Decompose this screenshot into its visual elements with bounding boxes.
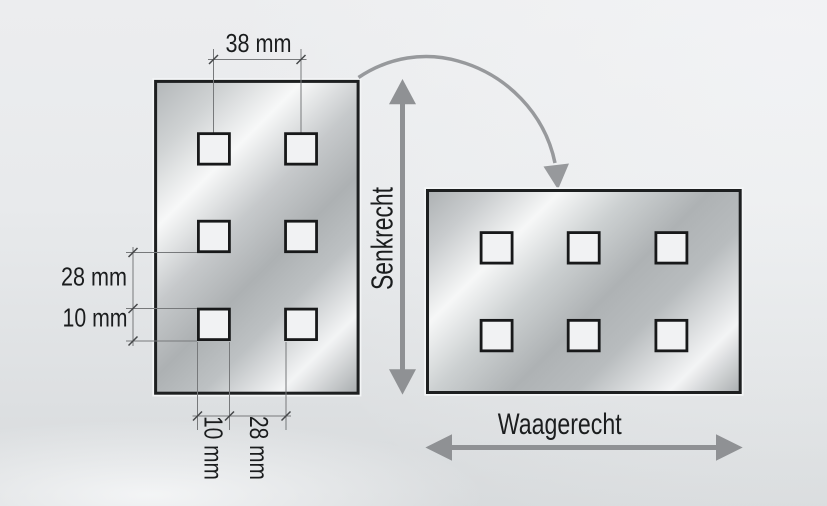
svg-text:10 mm: 10 mm bbox=[63, 303, 128, 333]
svg-text:Waagerecht: Waagerecht bbox=[498, 408, 623, 441]
svg-text:28 mm: 28 mm bbox=[61, 262, 127, 292]
svg-text:28 mm: 28 mm bbox=[244, 416, 274, 480]
svg-text:Senkrecht: Senkrecht bbox=[365, 187, 400, 290]
svg-text:38 mm: 38 mm bbox=[226, 28, 292, 58]
svg-text:10 mm: 10 mm bbox=[199, 416, 229, 480]
